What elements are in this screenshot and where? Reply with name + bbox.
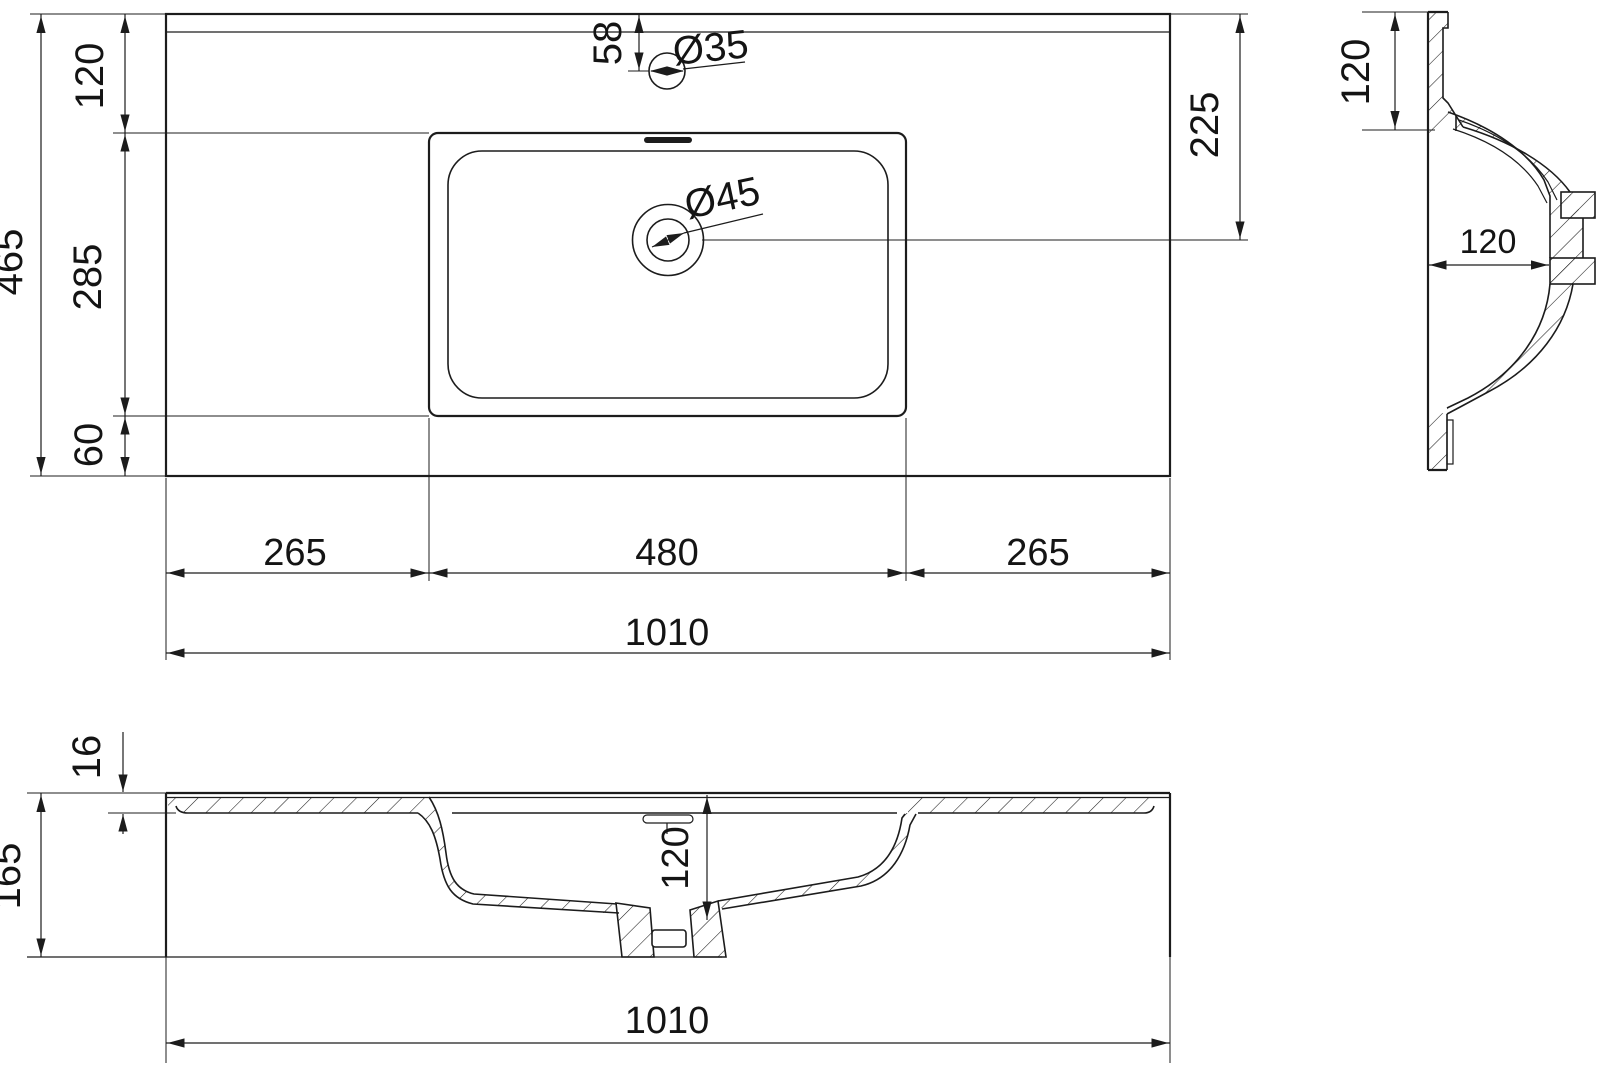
dim-slab-thickness: 16 [65, 735, 109, 780]
dim-overall-width-top: 1010 [625, 612, 710, 654]
dim-right-margin: 265 [1006, 532, 1069, 574]
dim-overall-width-front: 1010 [625, 1000, 710, 1042]
dim-basin-width: 480 [635, 532, 698, 574]
dim-overall-depth: 465 [0, 229, 31, 296]
drain-opening [652, 930, 686, 947]
dim-bowl-depth-front: 120 [655, 826, 697, 889]
overflow-outlet-upper [1561, 192, 1595, 218]
background [0, 0, 1600, 1065]
dim-side-bowl-depth: 120 [1460, 223, 1517, 261]
dim-drain-from-back: 225 [1183, 92, 1227, 159]
dim-front-offset: 60 [67, 423, 111, 468]
drain-trap-wall-left [616, 903, 654, 957]
label-faucet-diameter: Ø35 [671, 22, 751, 74]
dim-faucet-offset: 58 [586, 21, 630, 66]
technical-drawing-canvas: 465 120 285 60 58 Ø35 Ø45 225 265 480 26… [0, 0, 1600, 1065]
side-bottom-strip-hatch [1428, 410, 1447, 470]
dim-side-back-ledge: 120 [1334, 39, 1378, 106]
slab-hatch-left [168, 798, 428, 813]
dim-back-offset: 120 [68, 43, 112, 110]
drawing-page: 465 120 285 60 58 Ø35 Ø45 225 265 480 26… [0, 0, 1600, 1065]
dim-left-margin: 265 [263, 532, 326, 574]
overflow-outlet-lower [1550, 258, 1595, 284]
dim-overall-height: 165 [0, 843, 29, 910]
slab-hatch-right [908, 798, 1150, 813]
dim-basin-plan-depth: 285 [66, 244, 110, 311]
overflow-slot-plan [644, 137, 692, 143]
